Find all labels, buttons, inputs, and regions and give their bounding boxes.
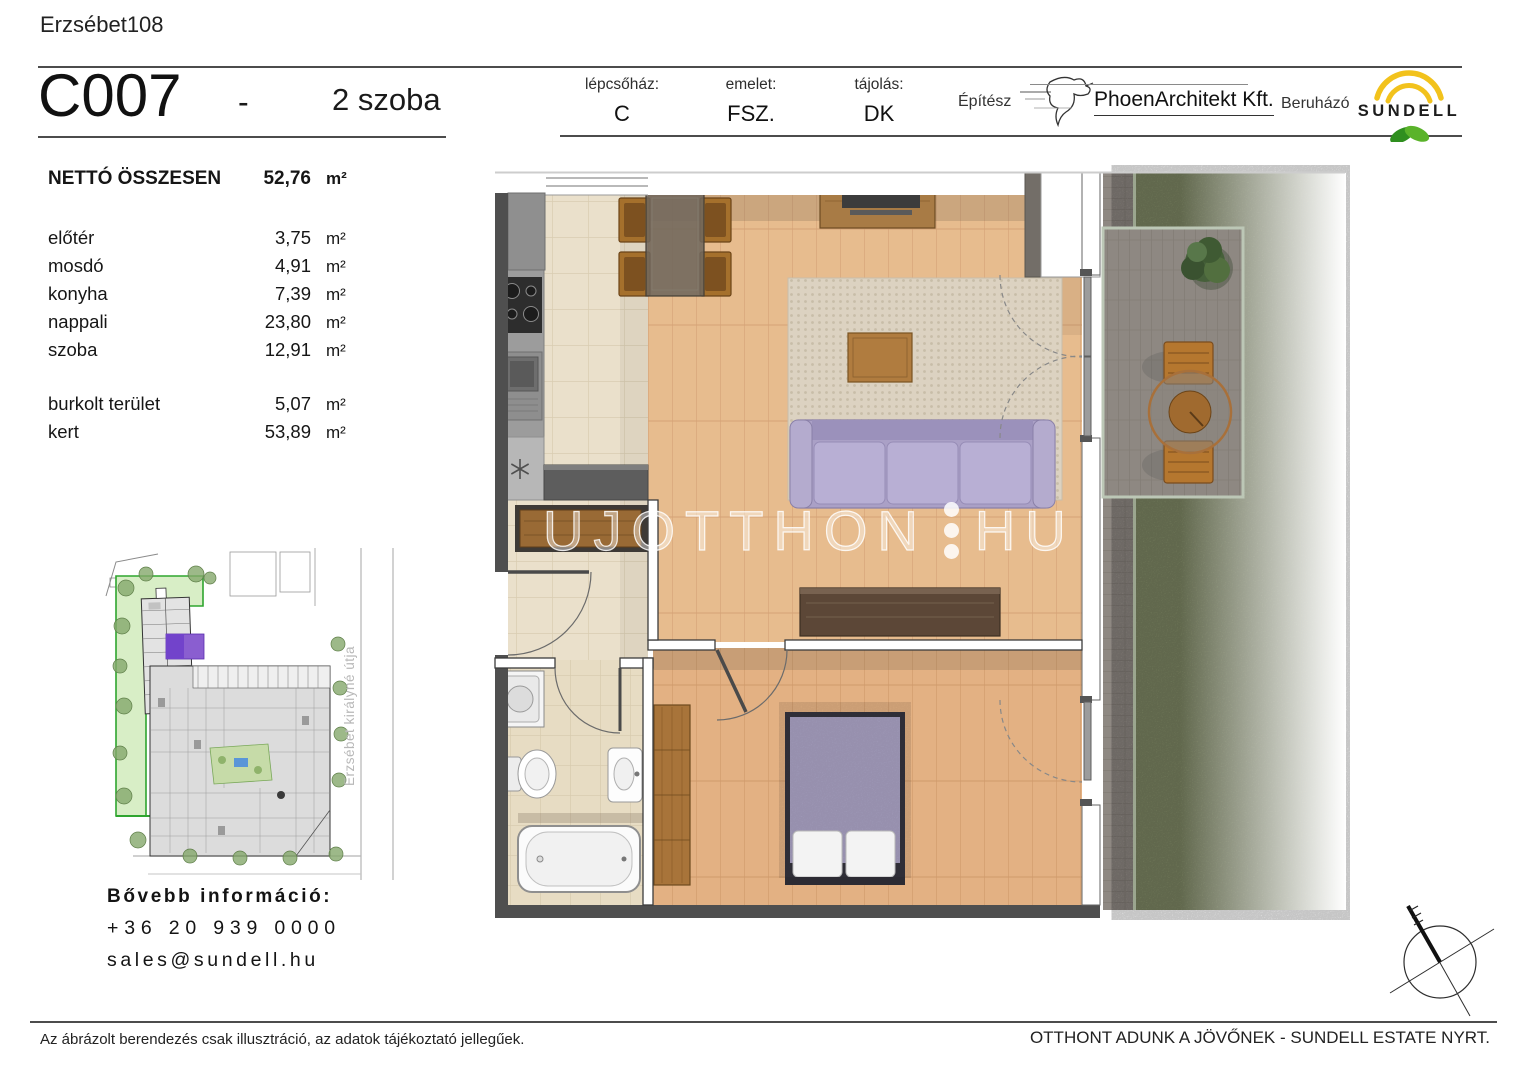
room-label: mosdó bbox=[48, 255, 237, 277]
unit-id: C007 bbox=[38, 66, 181, 126]
terrace-door-leaf bbox=[1084, 357, 1091, 436]
phoenarchitekt-logo-icon bbox=[1020, 72, 1094, 130]
coffee-table bbox=[848, 333, 912, 382]
area-total-label: NETTÓ ÖSSZESEN bbox=[48, 168, 237, 190]
area-row-nappali: nappali 23,80 m² bbox=[48, 311, 372, 339]
header-right-bottom-rule bbox=[560, 135, 1462, 137]
architect-label: Építész bbox=[958, 93, 1011, 111]
sundell-logo: SUNDELL bbox=[1352, 62, 1468, 142]
footer-rule bbox=[30, 1021, 1497, 1023]
room-unit: m² bbox=[311, 229, 372, 249]
room-label: burkolt terület bbox=[48, 393, 237, 415]
room-value: 53,89 bbox=[237, 421, 311, 443]
area-row-mosdo: mosdó 4,91 m² bbox=[48, 255, 372, 283]
developer-label: Beruházó bbox=[1281, 95, 1350, 113]
room-unit: m² bbox=[311, 341, 372, 361]
field-floor: emelet: FSZ. bbox=[681, 76, 821, 127]
room-label: nappali bbox=[48, 311, 237, 333]
datasheet-page: Erzsébet108 C007 - 2 szoba lépcsőház: C … bbox=[0, 0, 1527, 1080]
sun-arc-inner-icon bbox=[1388, 86, 1430, 101]
double-bed bbox=[785, 712, 905, 885]
contact-email: sales@sundell.hu bbox=[107, 949, 341, 972]
pillow bbox=[793, 831, 842, 877]
floor-label: emelet: bbox=[681, 76, 821, 94]
room-label: konyha bbox=[48, 283, 237, 305]
room-count: 2 szoba bbox=[332, 82, 441, 118]
terrace-door-leaf bbox=[1084, 277, 1091, 356]
tv-icon bbox=[842, 195, 920, 208]
pillow bbox=[846, 831, 895, 877]
sideboard-console bbox=[800, 588, 1000, 636]
room-label: szoba bbox=[48, 339, 237, 361]
kitchen-peninsula bbox=[544, 465, 648, 500]
tv-cabinet bbox=[820, 190, 935, 228]
leaf-icon bbox=[1388, 123, 1432, 142]
area-total-value: 52,76 bbox=[237, 168, 311, 190]
header-left-bottom-rule bbox=[38, 136, 446, 138]
area-row-szoba: szoba 12,91 m² bbox=[48, 339, 372, 367]
terrace-table bbox=[1149, 371, 1231, 453]
bedroom-terrace-door-leaf bbox=[1084, 702, 1091, 780]
watermark: UJOTTHON HU bbox=[543, 498, 1076, 563]
watermark-dots-icon bbox=[944, 502, 959, 559]
room-label: kert bbox=[48, 421, 237, 443]
wardrobe bbox=[654, 705, 690, 885]
project-name: Erzsébet108 bbox=[40, 12, 164, 38]
room-value: 5,07 bbox=[237, 393, 311, 415]
area-row-burkolt: burkolt terület 5,07 m² bbox=[48, 393, 372, 421]
watermark-text-right: HU bbox=[975, 498, 1076, 563]
terrace bbox=[1103, 228, 1243, 497]
table-gap bbox=[48, 367, 372, 393]
north-arrow-icon bbox=[1378, 896, 1498, 1021]
toilet-icon bbox=[505, 750, 556, 798]
floor-value: FSZ. bbox=[681, 101, 821, 127]
area-row-kert: kert 53,89 m² bbox=[48, 421, 372, 449]
neighbour-building bbox=[280, 552, 310, 592]
contact-title: Bővebb információ: bbox=[107, 886, 341, 908]
room-value: 3,75 bbox=[237, 227, 311, 249]
area-row-eloter: előtér 3,75 m² bbox=[48, 227, 372, 255]
room-unit: m² bbox=[311, 423, 372, 443]
room-value: 7,39 bbox=[237, 283, 311, 305]
site-building-main bbox=[150, 666, 330, 856]
room-value: 12,91 bbox=[237, 339, 311, 361]
header-top-rule bbox=[38, 66, 1462, 68]
room-label: előtér bbox=[48, 227, 237, 249]
room-unit: m² bbox=[311, 395, 372, 415]
architect-logo-rule bbox=[1030, 84, 1248, 85]
staircase-value: C bbox=[552, 101, 692, 127]
bathtub-icon bbox=[518, 826, 640, 892]
unit-separator: - bbox=[238, 84, 249, 121]
area-total-row: NETTÓ ÖSSZESEN 52,76 m² bbox=[48, 168, 372, 196]
highlighted-unit-core bbox=[166, 634, 184, 659]
footer-slogan: OTTHONT ADUNK A JÖVŐNEK - SUNDELL ESTATE… bbox=[1030, 1028, 1490, 1048]
footer-disclaimer: Az ábrázolt berendezés csak illusztráció… bbox=[40, 1031, 524, 1048]
room-value: 23,80 bbox=[237, 311, 311, 333]
developer-name: SUNDELL bbox=[1358, 102, 1460, 120]
area-total-unit: m² bbox=[311, 169, 372, 189]
orientation-label: tájolás: bbox=[809, 76, 949, 94]
staircase-label: lépcsőház: bbox=[552, 76, 692, 94]
street-name: Erzsébet királyné útja bbox=[342, 646, 357, 786]
room-unit: m² bbox=[311, 313, 372, 333]
bathroom-sink-icon bbox=[608, 748, 642, 802]
architect-name: PhoenArchitekt Kft. bbox=[1094, 88, 1274, 116]
garden-area bbox=[1103, 173, 1346, 910]
room-unit: m² bbox=[311, 257, 372, 277]
contact-block: Bővebb információ: +36 20 939 0000 sales… bbox=[107, 886, 341, 972]
field-staircase: lépcsőház: C bbox=[552, 76, 692, 127]
field-orientation: tájolás: DK bbox=[809, 76, 949, 127]
neighbour-building bbox=[230, 552, 276, 596]
contact-phone: +36 20 939 0000 bbox=[107, 917, 341, 940]
room-unit: m² bbox=[311, 285, 372, 305]
area-table: NETTÓ ÖSSZESEN 52,76 m² előtér 3,75 m² m… bbox=[48, 168, 372, 449]
dining-table bbox=[646, 192, 704, 296]
room-value: 4,91 bbox=[237, 255, 311, 277]
site-map: Erzsébet királyné útja bbox=[98, 548, 398, 880]
sofa bbox=[790, 420, 1055, 508]
orientation-value: DK bbox=[809, 101, 949, 127]
area-row-konyha: konyha 7,39 m² bbox=[48, 283, 372, 311]
watermark-text-left: UJOTTHON bbox=[543, 498, 928, 563]
